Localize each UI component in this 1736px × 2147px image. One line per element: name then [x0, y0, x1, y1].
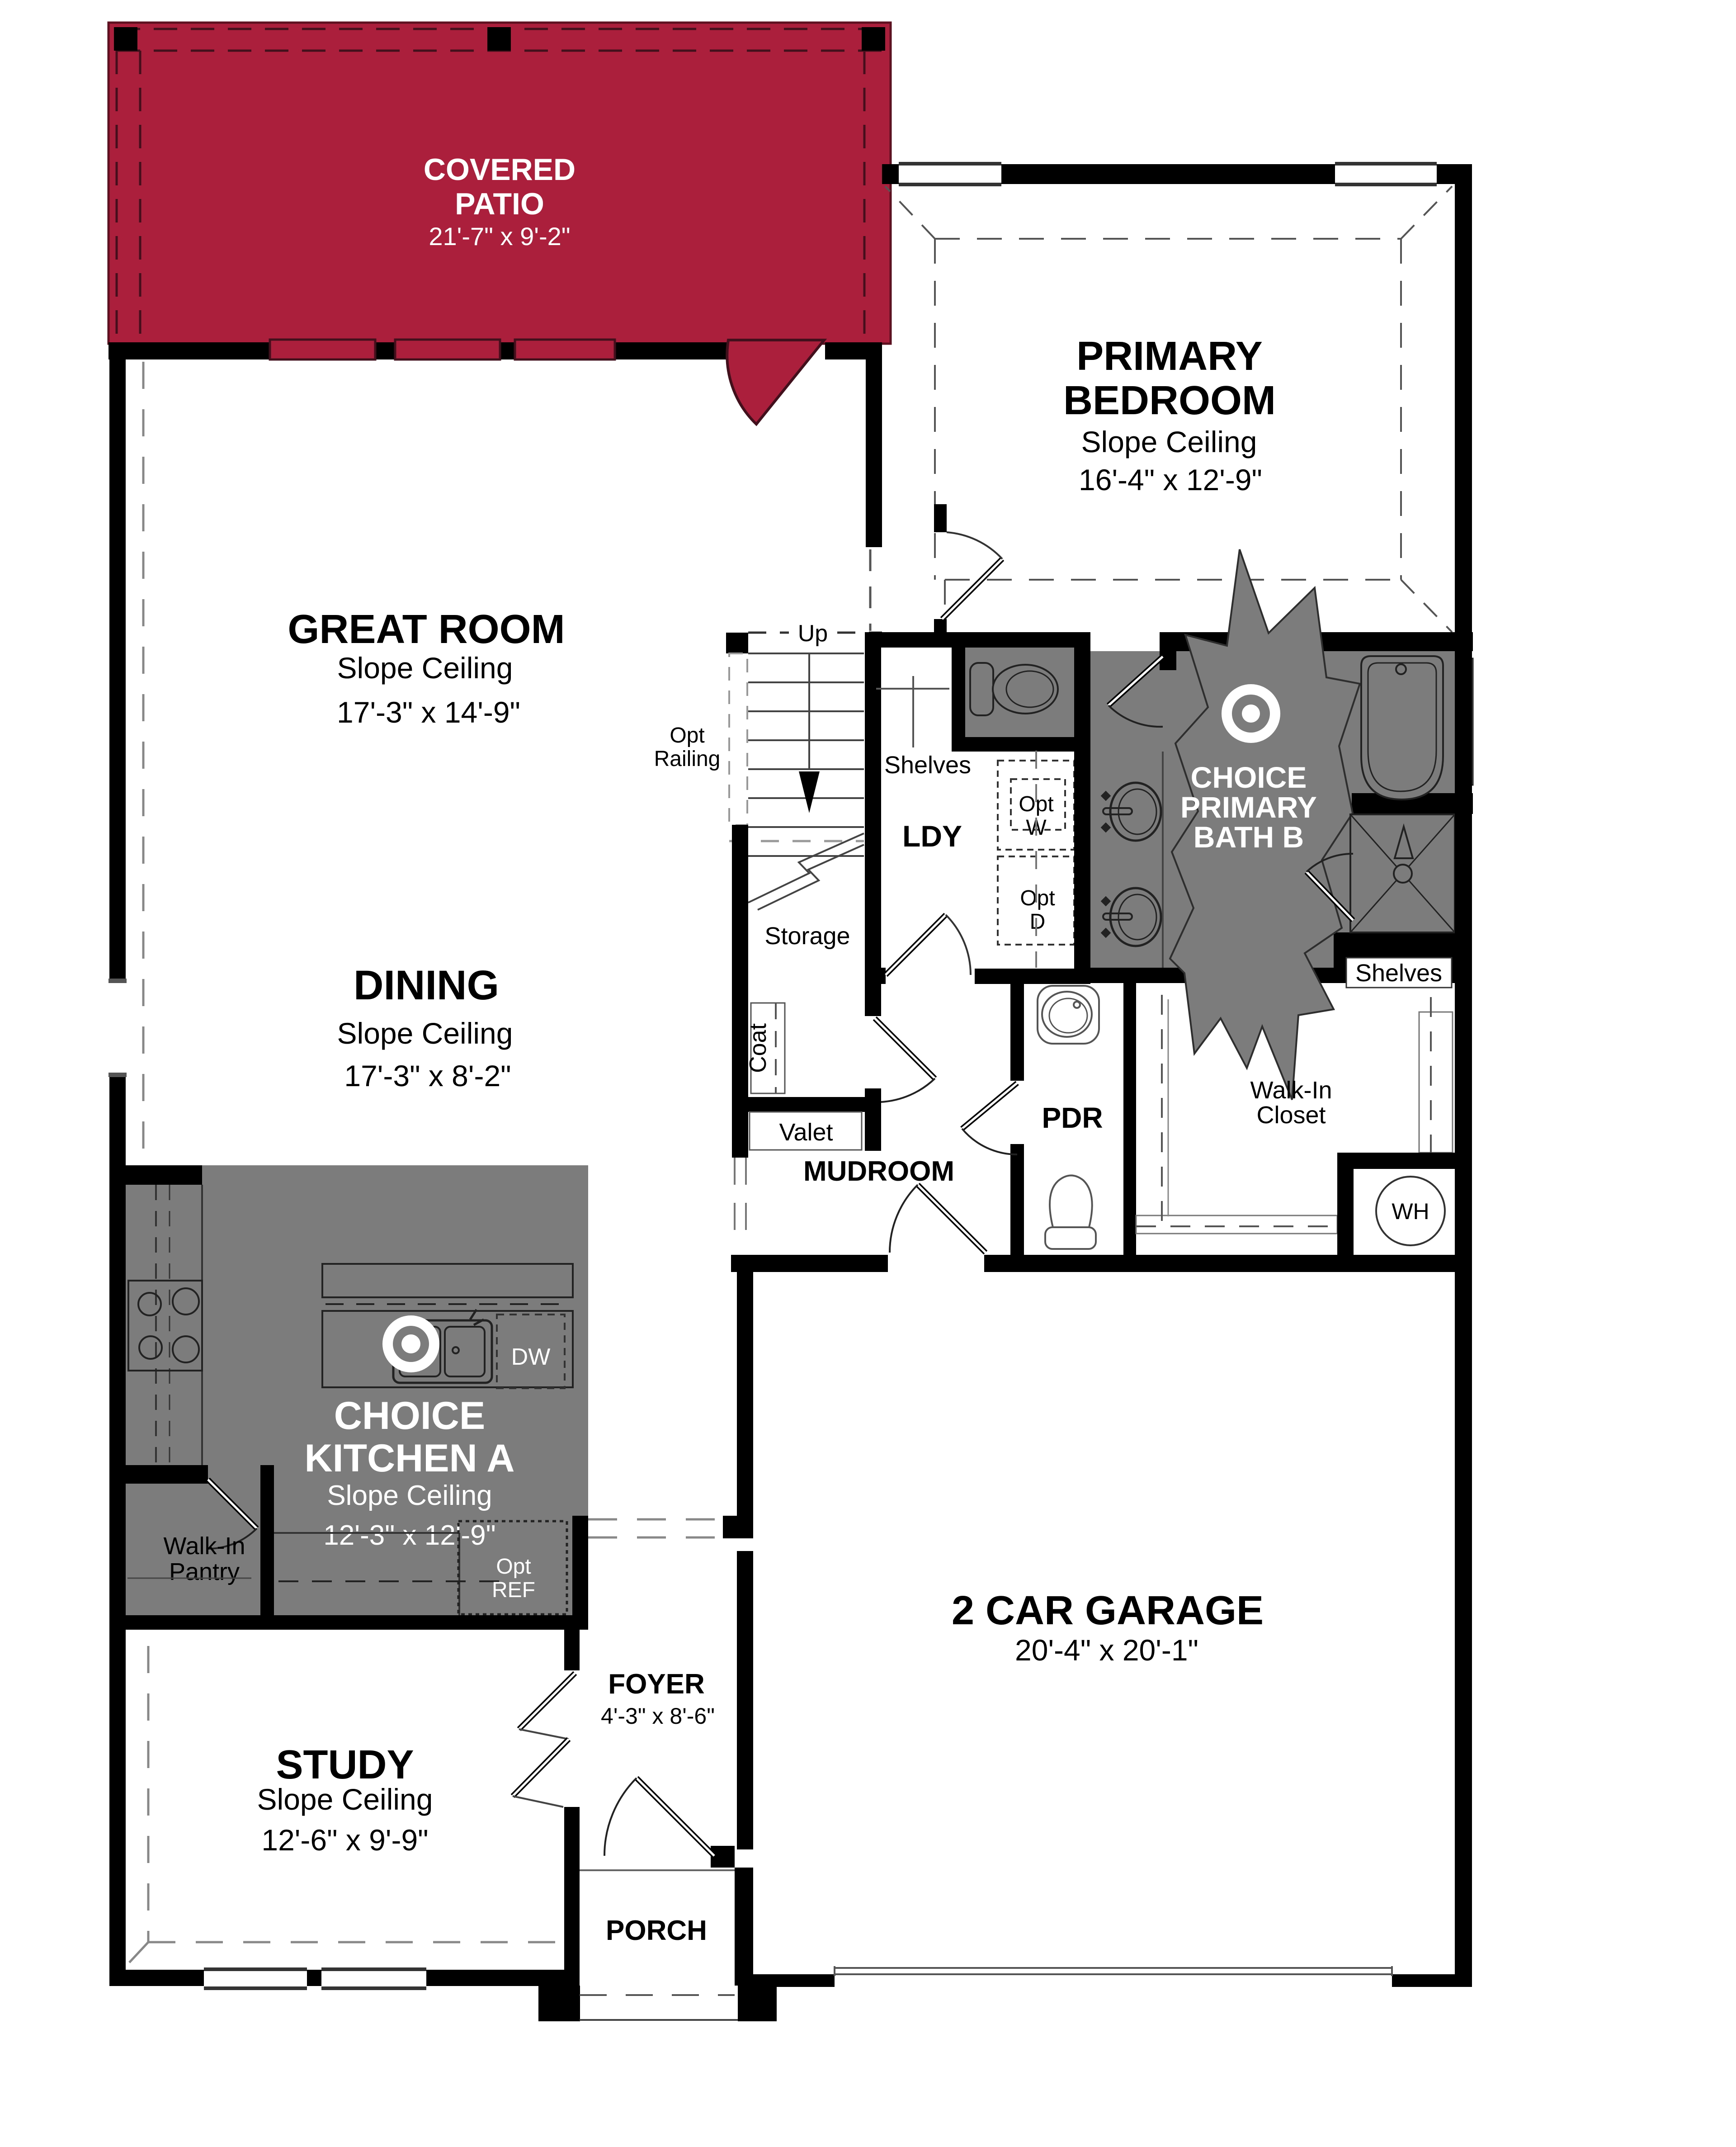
svg-text:4'-3" x 8'-6": 4'-3" x 8'-6" — [601, 1703, 715, 1729]
svg-text:Walk-In: Walk-In — [163, 1532, 245, 1560]
svg-text:Up: Up — [798, 620, 828, 647]
svg-text:REF: REF — [492, 1578, 535, 1602]
svg-text:Opt: Opt — [496, 1555, 531, 1579]
svg-text:16'-4" x 12'-9": 16'-4" x 12'-9" — [1079, 463, 1262, 497]
svg-text:BEDROOM: BEDROOM — [1063, 378, 1276, 423]
svg-text:Pantry: Pantry — [169, 1558, 240, 1585]
svg-text:Opt: Opt — [1020, 886, 1055, 910]
svg-text:WH: WH — [1392, 1199, 1429, 1224]
svg-text:21'-7" x 9'-2": 21'-7" x 9'-2" — [429, 222, 570, 251]
svg-text:Shelves: Shelves — [884, 752, 971, 779]
svg-text:12'-6" x 9'-9": 12'-6" x 9'-9" — [261, 1823, 428, 1857]
svg-text:Walk-In: Walk-In — [1250, 1077, 1332, 1104]
svg-text:Slope Ceiling: Slope Ceiling — [337, 651, 513, 685]
svg-text:2 CAR GARAGE: 2 CAR GARAGE — [952, 1588, 1264, 1633]
svg-text:PORCH: PORCH — [606, 1915, 707, 1946]
svg-text:Slope Ceiling: Slope Ceiling — [337, 1017, 513, 1050]
svg-text:LDY: LDY — [902, 819, 962, 853]
svg-text:Slope Ceiling: Slope Ceiling — [1081, 425, 1257, 459]
svg-text:CHOICE: CHOICE — [1191, 761, 1307, 794]
svg-text:PDR: PDR — [1042, 1102, 1103, 1134]
svg-text:FOYER: FOYER — [608, 1669, 705, 1700]
svg-text:MUDROOM: MUDROOM — [803, 1156, 954, 1187]
svg-text:Shelves: Shelves — [1355, 960, 1442, 987]
svg-text:PRIMARY: PRIMARY — [1180, 790, 1317, 824]
svg-text:20'-4" x 20'-1": 20'-4" x 20'-1" — [1015, 1633, 1198, 1667]
svg-text:Slope Ceiling: Slope Ceiling — [257, 1783, 433, 1816]
svg-text:BATH B: BATH B — [1193, 820, 1304, 854]
svg-text:Slope Ceiling: Slope Ceiling — [327, 1480, 492, 1511]
svg-text:17'-3" x 8'-2": 17'-3" x 8'-2" — [344, 1059, 511, 1092]
svg-text:DW: DW — [511, 1344, 551, 1370]
svg-text:GREAT ROOM: GREAT ROOM — [288, 607, 565, 652]
svg-text:Valet: Valet — [779, 1119, 833, 1146]
svg-text:Opt: Opt — [670, 724, 704, 747]
svg-text:Railing: Railing — [654, 747, 721, 771]
svg-text:STUDY: STUDY — [276, 1742, 414, 1788]
svg-text:KITCHEN A: KITCHEN A — [304, 1437, 514, 1480]
svg-text:12'-3" x 12'-9": 12'-3" x 12'-9" — [323, 1520, 495, 1551]
svg-text:PATIO: PATIO — [455, 187, 544, 221]
svg-text:DINING: DINING — [354, 962, 499, 1008]
svg-text:17'-3" x 14'-9": 17'-3" x 14'-9" — [337, 695, 520, 729]
svg-text:CHOICE: CHOICE — [334, 1394, 485, 1438]
svg-text:COVERED: COVERED — [424, 152, 576, 187]
svg-text:PRIMARY: PRIMARY — [1076, 334, 1263, 379]
svg-text:Coat: Coat — [745, 1023, 771, 1073]
svg-text:D: D — [1030, 910, 1046, 934]
svg-text:Closet: Closet — [1256, 1102, 1326, 1129]
svg-text:Storage: Storage — [764, 922, 850, 950]
